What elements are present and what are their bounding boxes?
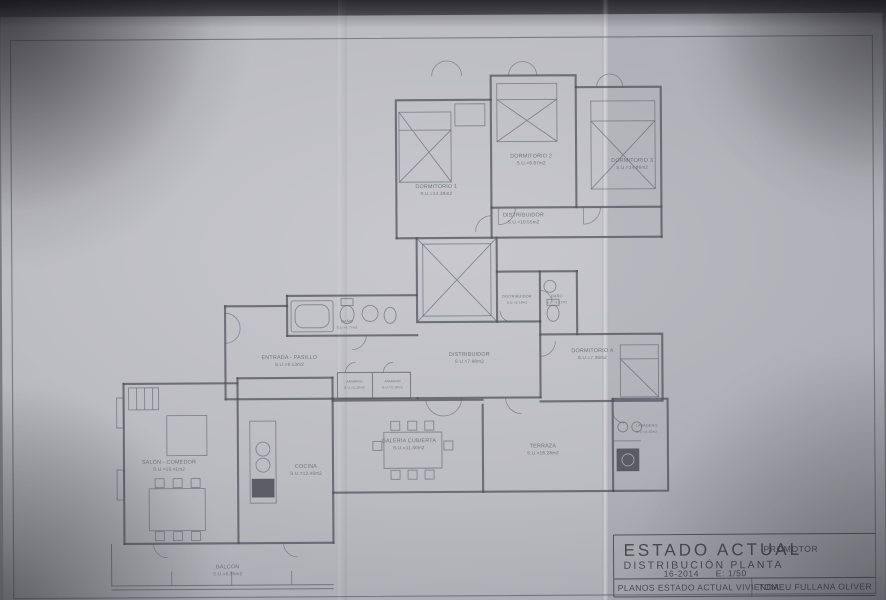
room-area-entrada: S.U.=9.13m2 <box>275 362 304 367</box>
room-area-distribuidor3: S.U.=7.88m2 <box>455 359 484 364</box>
room-label-bano1: BAÑO <box>551 293 563 298</box>
room-area-dormitorio1: S.U.=14.39m2 <box>420 191 452 196</box>
room-label-balcon: BALCÓN <box>216 563 239 570</box>
room-label-distribuidor1: DISTRIBUIDOR <box>503 212 544 218</box>
room-area-armario1: S.U.=1.10m2 <box>344 385 365 389</box>
room-label-dormitorio3: DORMITORIO 3 <box>611 158 653 164</box>
title-block-promoter-name: TOMEU FULLANA OLIVER <box>759 581 872 592</box>
floor-plan-drawing: DORMITORIO 1 S.U.=14.39m2 DORMITORIO 2 S… <box>0 0 886 600</box>
title-block: ESTADO ACTUAL DISTRIBUCIÓN PLANTA 16-201… <box>613 533 875 597</box>
room-area-dormitorio2: S.U.=9.87m2 <box>517 160 546 165</box>
room-label-distribuidor3: DISTRIBUIDOR <box>449 352 490 358</box>
room-area-bano2: S.U.=5.77m2 <box>337 326 358 330</box>
room-label-dormitorio4: DORMITORIO 4 <box>571 348 613 354</box>
room-area-terraza: S.U.=16.28m2 <box>527 450 559 455</box>
room-area-galeria: S.U.=11.30m2 <box>393 445 425 450</box>
room-area-distribuidor2: S.U.=3.19m2 <box>507 300 528 304</box>
room-area-dormitorio3: S.U.=14.86m2 <box>616 165 648 170</box>
room-label-armario2: ARMARIO <box>384 379 401 383</box>
room-label-dormitorio2: DORMITORIO 2 <box>510 153 552 159</box>
room-area-distribuidor1: S.U.=10.55m2 <box>508 219 540 224</box>
room-area-cocina: S.U.=12.46m2 <box>290 471 322 476</box>
bed-dormitorio1 <box>399 104 485 183</box>
room-label-salon: SALÓN - COMEDOR <box>142 459 196 466</box>
room-area-armario2: S.U.=1.10m2 <box>382 385 403 389</box>
gallery-table <box>373 421 453 479</box>
room-label-armario1: ARMARIO <box>346 379 363 383</box>
sheet-frame <box>10 35 875 598</box>
room-label-lavadero: LAVADERO <box>636 424 658 428</box>
bed-dormitorio2 <box>497 83 557 141</box>
room-label-galeria: GALERÍA CUBIERTA <box>382 437 437 444</box>
title-block-promoter-label: PROMOTOR <box>763 544 818 554</box>
title-block-plan-name: PLANOS ESTADO ACTUAL VIVIENDA <box>618 582 780 593</box>
room-labels: DORMITORIO 1 S.U.=14.39m2 DORMITORIO 2 S… <box>140 153 659 577</box>
room-label-bano2: BAÑO <box>341 319 353 324</box>
bed-dormitorio4 <box>620 345 658 397</box>
walls <box>109 75 669 590</box>
room-area-bano1: S.U.=3.17m2 <box>547 300 568 304</box>
title-block-project-number: 16-2014 <box>664 568 699 578</box>
room-label-terraza: TERRAZA <box>530 443 557 449</box>
room-label-entrada: ENTRADA - PASILLO <box>261 355 317 361</box>
sink <box>362 305 396 323</box>
room-label-distribuidor2: DISTRIBUIDOR <box>502 294 532 298</box>
bathtub <box>291 301 333 332</box>
room-label-cocina: COCINA <box>295 464 317 470</box>
floor-plan-photo: DORMITORIO 1 S.U.=14.39m2 DORMITORIO 2 S… <box>0 0 886 600</box>
kitchen-fixtures <box>250 421 277 503</box>
room-area-salon: S.U.=19.41m2 <box>153 467 185 472</box>
room-area-dormitorio4: S.U.=7.36m2 <box>578 355 607 360</box>
title-block-scale: E: 1/50 <box>716 568 747 578</box>
room-area-balcon: S.U.=9.95m2 <box>213 571 242 576</box>
room-label-dormitorio1: DORMITORIO 1 <box>415 184 457 190</box>
room-area-lavadero: S.U.=9.40m2 <box>636 430 657 434</box>
title-block-subtitle: DISTRIBUCIÓN PLANTA <box>624 558 784 572</box>
doors <box>151 60 626 558</box>
bed-dormitorio3 <box>591 101 656 189</box>
